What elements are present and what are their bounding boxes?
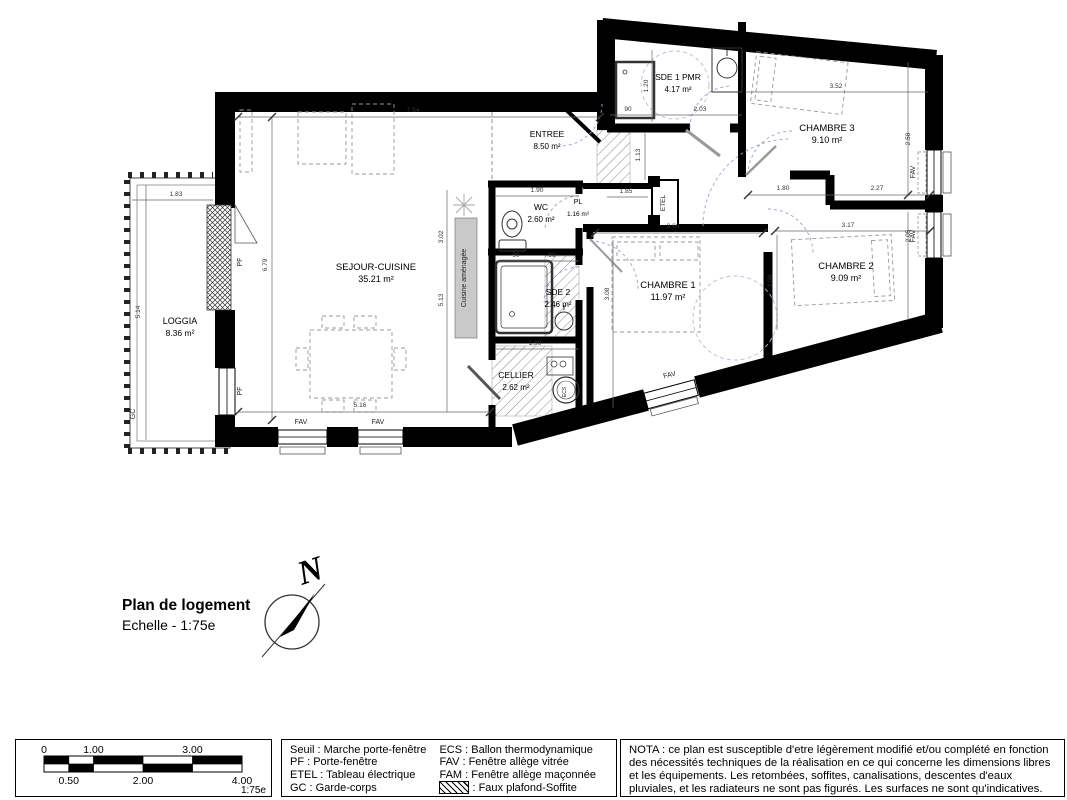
dimension-label: 1.80	[777, 185, 790, 192]
room-label-name: ENTREE	[530, 129, 565, 139]
dimension-label: 1.20	[643, 79, 650, 92]
legend-item-seuil: Seuil : Marche porte-fenêtre	[290, 744, 439, 756]
legend-box: Seuil : Marche porte-fenêtre PF : Porte-…	[281, 739, 617, 797]
sofa	[298, 112, 346, 164]
dimension-label: 5.13	[438, 293, 445, 306]
dining-table-set	[296, 316, 406, 412]
legend-item-fav: FAV : Fenêtre allège vitrée	[439, 756, 608, 768]
annotation-label: ETEL	[660, 194, 667, 211]
room-label-area: 2.46 m²	[544, 300, 571, 309]
pf-door-loggia-lower	[219, 368, 235, 415]
annotation-label: ECS	[562, 386, 568, 397]
dimension-label: 2.27	[871, 185, 884, 192]
north-compass: N	[262, 549, 329, 657]
north-label: N	[292, 549, 329, 593]
dimension-label: 90	[512, 252, 520, 259]
dimension-label: 5.14	[135, 305, 142, 318]
room-label-name: CHAMBRE 3	[799, 123, 854, 134]
dimension-label: 3.02	[438, 230, 445, 243]
dimension-label: 1.13	[635, 148, 642, 161]
dimension-label: 3.17	[842, 222, 855, 229]
legend-item-etel: ETEL : Tableau électrique	[290, 769, 439, 781]
dimension-label: 90	[624, 106, 632, 113]
annotation-label: FAV	[372, 419, 385, 426]
room-label-name: CHAMBRE 1	[640, 280, 695, 291]
room-label-name: SEJOUR-CUISINE	[336, 262, 416, 273]
annotation-label: PF	[237, 387, 244, 396]
scale-bar-segments	[44, 756, 242, 772]
annotation-label: GC	[130, 409, 137, 420]
legend-item-ecs: ECS : Ballon thermodynamique	[439, 744, 608, 756]
scale-note: 1:75e	[241, 785, 266, 795]
fav-window-bottom-right	[358, 430, 403, 454]
fav-window-right-upper	[918, 150, 951, 195]
room-label-area: 2.60 m²	[527, 215, 554, 224]
annotation-label: FAV	[910, 165, 917, 178]
scale-tick-05: 0.50	[59, 775, 80, 787]
dimension-label: 1.83	[170, 191, 183, 198]
scale-bar: 0 1.00 3.00 0.50 2.00 4.00 1:75e	[16, 740, 270, 795]
plan-scale: Echelle - 1:75e	[122, 617, 250, 633]
compass-needle	[280, 593, 315, 637]
nota-box: NOTA : ce plan est susceptible d'etre lé…	[620, 739, 1065, 797]
dimension-label: 1.85	[620, 188, 633, 195]
legend-item-gc: GC : Garde-corps	[290, 781, 439, 794]
scale-tick-0: 0	[41, 744, 47, 756]
room-label-area: 11.97 m²	[651, 292, 686, 302]
dimension-label: 1.90	[531, 187, 544, 194]
plan-title: Plan de logement	[122, 597, 250, 615]
scale-tick-1: 1.00	[83, 744, 104, 756]
cooktop-symbol	[453, 194, 475, 216]
dimension-label: 5.16	[354, 402, 367, 409]
dimension-label: 7.54	[407, 107, 420, 114]
floor-plan-drawing: LOGGIA8.36 m²SEJOUR-CUISINE35.21 m²ENTRE…	[0, 0, 1067, 800]
dimension-label: 6.79	[262, 258, 269, 271]
legend-item-faux-plafond: : Faux plafond-Soffite	[439, 781, 608, 794]
floor-plan-sheet: LOGGIA8.36 m²SEJOUR-CUISINE35.21 m²ENTRE…	[0, 0, 1067, 800]
annotation-label: Cuisine aménagée	[461, 249, 468, 307]
room-label-area: 8.50 m²	[533, 142, 560, 151]
legend-item-pf: PF : Porte-fenêtre	[290, 756, 439, 768]
dimension-label: 1.90	[529, 340, 542, 347]
hatch-swatch-icon	[439, 781, 469, 794]
room-label-name: CHAMBRE 2	[818, 261, 873, 272]
room-label-area: 8.36 m²	[166, 328, 195, 338]
fav-window-bottom-left	[278, 430, 327, 454]
dimension-label: 90	[548, 252, 556, 259]
fav-window-right-lower	[918, 212, 951, 258]
dimension-label: 3.52	[830, 83, 843, 90]
room-label-name: CELLIER	[498, 370, 533, 380]
room-label-area: 2.62 m²	[502, 383, 529, 392]
room-label-name: LOGGIA	[163, 316, 198, 326]
scale-tick-3: 3.00	[182, 744, 203, 756]
dimension-label: 2.58	[905, 132, 912, 145]
dimension-label: 2.08	[767, 274, 774, 287]
sde1-washbasin	[712, 48, 742, 92]
room-label-area: 1.16 m²	[567, 211, 590, 218]
annotation-label: FAV	[295, 419, 308, 426]
room-label-name: PL	[574, 199, 583, 206]
room-label-area: 9.10 m²	[812, 135, 843, 145]
pf-door-loggia-upper	[207, 205, 257, 310]
sde2-shower	[496, 261, 552, 333]
tv-unit	[240, 110, 252, 172]
dimension-label: 3.60	[667, 223, 680, 230]
annotation-label: FAV	[663, 371, 677, 381]
dimension-label: 2.05	[905, 229, 912, 242]
legend-item-fam: FAM : Fenêtre allège maçonnée	[439, 769, 608, 781]
scale-tick-2: 2.00	[133, 775, 154, 787]
room-label-name: WC	[534, 202, 548, 212]
nota-text: NOTA : ce plan est susceptible d'etre lé…	[629, 744, 1050, 795]
room-label-area: 9.09 m²	[831, 273, 862, 283]
armchair-set	[352, 104, 394, 174]
sde1-door-leaf	[686, 130, 720, 156]
wc-toilet	[499, 211, 526, 251]
legend-item-faux-plafond-label: : Faux plafond-Soffite	[472, 782, 576, 794]
annotation-label: PF	[237, 258, 244, 267]
room-label-area: 4.17 m²	[664, 85, 691, 94]
room-label-area: 35.21 m²	[358, 274, 394, 284]
dimension-label: 3.08	[604, 287, 611, 300]
title-block: Plan de logement Echelle - 1:75e	[122, 597, 250, 633]
room-label-name: SDE 2	[546, 287, 571, 297]
fav-window-diagonal	[644, 380, 700, 417]
dimension-label: 2.03	[694, 106, 707, 113]
room-label-name: SDE 1 PMR	[655, 72, 701, 82]
scale-bar-box: 0 1.00 3.00 0.50 2.00 4.00 1:75e	[15, 739, 272, 797]
